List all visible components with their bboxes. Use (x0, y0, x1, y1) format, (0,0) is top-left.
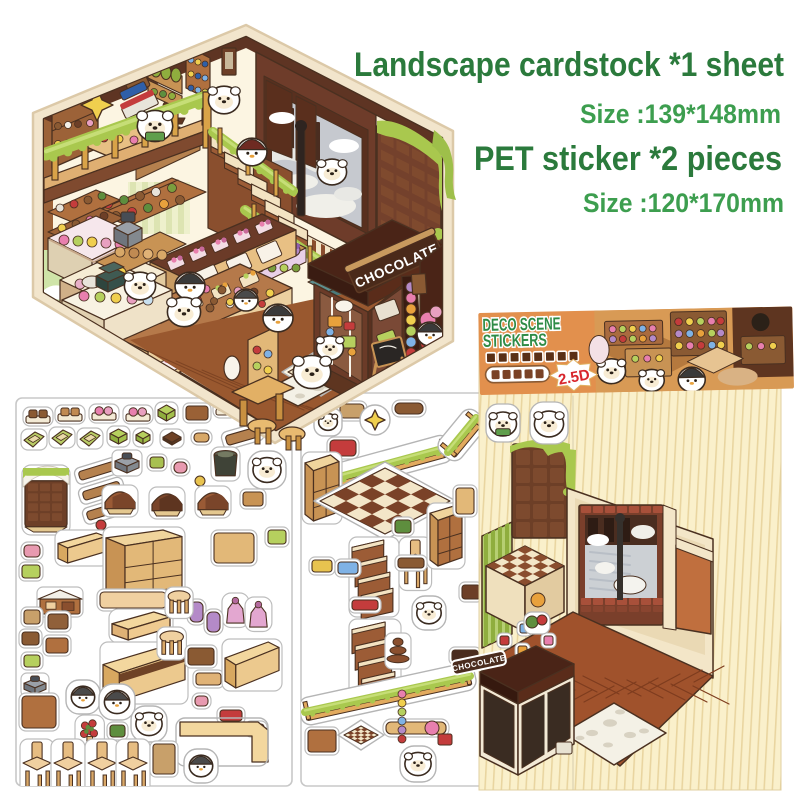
svg-text:PET sticker *2 pieces: PET sticker *2 pieces (474, 140, 782, 178)
svg-text:Size :139*148mm: Size :139*148mm (580, 99, 781, 129)
svg-text:Size :120*170mm: Size :120*170mm (583, 188, 784, 218)
svg-text:STICKERS: STICKERS (483, 330, 547, 351)
svg-text:Landscape cardstock *1 sheet: Landscape cardstock *1 sheet (354, 46, 784, 84)
